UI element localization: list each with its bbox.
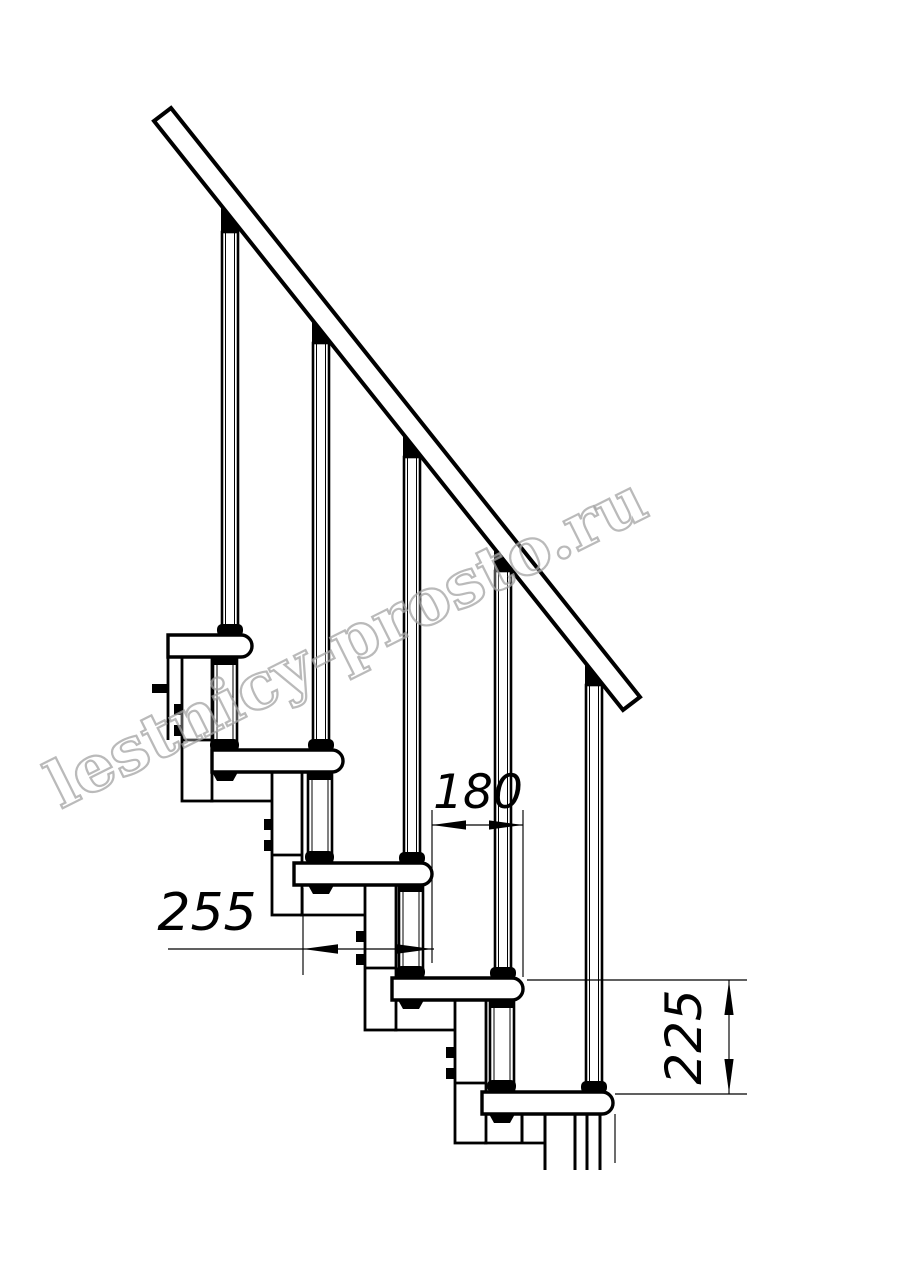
baluster-tube (222, 232, 238, 635)
module-box (272, 772, 302, 915)
staircase-drawing: 255 180 225 lestnicy-prosto.ru (0, 0, 914, 1280)
baluster-tube (586, 685, 602, 1092)
bolt (264, 819, 273, 830)
tread-profile (482, 1092, 613, 1114)
tread-5 (482, 1092, 613, 1123)
tread-profile (212, 750, 343, 772)
arrowhead-up-icon (724, 981, 733, 1015)
bolt (356, 954, 365, 965)
under-tread-bolt (489, 1114, 515, 1123)
under-tread-bolt (212, 772, 238, 781)
arrowhead-down-icon (724, 1059, 733, 1093)
tube-top-collar (490, 1001, 514, 1008)
watermark-text: lestnicy-prosto.ru (34, 462, 658, 824)
dimension-value: 255 (157, 883, 256, 943)
tread-profile (392, 978, 523, 1000)
baluster-5 (581, 665, 607, 1093)
watermark: lestnicy-prosto.ru (34, 462, 658, 824)
dimension-step-rise: 225 (527, 980, 747, 1094)
under-tread-bolt (308, 885, 334, 894)
bolt (264, 840, 273, 851)
module-box (365, 884, 396, 1030)
tread-profile (294, 863, 432, 885)
baluster-tube (404, 457, 420, 863)
baluster-1 (217, 207, 243, 636)
dimension-value: 225 (655, 989, 713, 1084)
tube-bottom-collar (305, 851, 334, 863)
module-box (455, 1000, 486, 1143)
arrowhead-left-icon (432, 820, 466, 829)
under-tread-bolt (398, 1000, 424, 1009)
arrowhead-left-icon (303, 944, 338, 954)
tube-top-collar (308, 773, 332, 780)
bolt (446, 1047, 455, 1058)
bolt (446, 1068, 455, 1079)
tube-bottom-collar (487, 1080, 516, 1092)
dimension-value: 180 (433, 765, 523, 820)
bolt (356, 931, 365, 942)
tube-bottom-collar (396, 966, 425, 978)
drawing-svg: 255 180 225 lestnicy-prosto.ru (0, 0, 914, 1280)
